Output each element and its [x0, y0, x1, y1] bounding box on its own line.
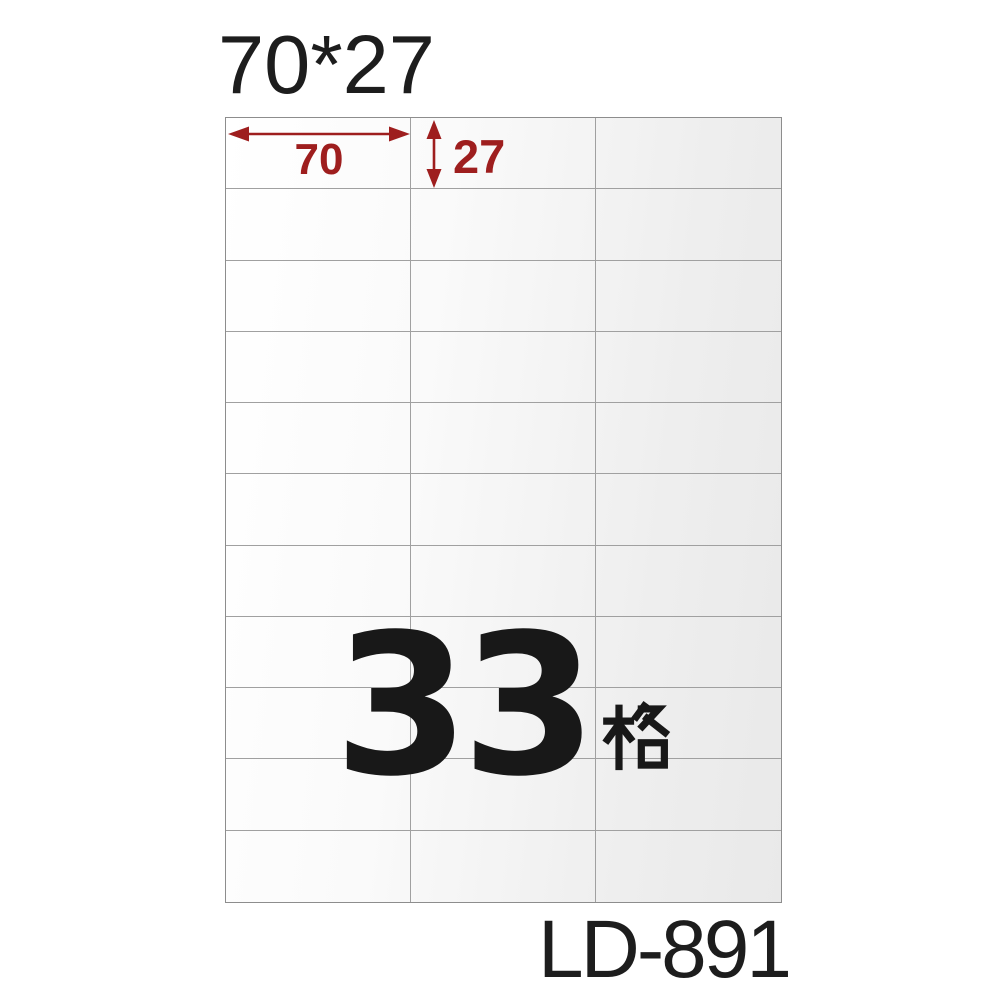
label-cell — [226, 189, 411, 260]
label-cell — [226, 403, 411, 474]
label-cell — [226, 261, 411, 332]
label-cell — [411, 403, 596, 474]
width-dimension-label: 70 — [226, 138, 412, 182]
label-cell — [596, 261, 781, 332]
label-cell — [596, 403, 781, 474]
label-cell — [411, 261, 596, 332]
label-cell — [411, 474, 596, 545]
height-dimension-arrow-icon — [419, 118, 449, 190]
label-cell — [596, 474, 781, 545]
ge-character-glyph-icon — [601, 699, 673, 775]
product-code: LD-891 — [538, 909, 789, 991]
cell-count-number: 33 — [334, 592, 589, 819]
label-cell — [596, 546, 781, 617]
label-cell — [226, 474, 411, 545]
label-cell — [411, 332, 596, 403]
label-cell — [411, 831, 596, 902]
label-sheet-product-diagram: 70*27 70 27 33格 — [0, 0, 1000, 1000]
label-cell — [596, 189, 781, 260]
label-cell — [596, 118, 781, 189]
label-cell — [226, 831, 411, 902]
label-cell — [226, 332, 411, 403]
cell-count-unit-text: 格 — [589, 608, 590, 609]
cell-count-label: 33格 — [226, 608, 781, 803]
height-dimension-label: 27 — [453, 133, 505, 180]
label-cell — [596, 831, 781, 902]
label-cell — [596, 332, 781, 403]
label-size-title: 70*27 — [218, 23, 435, 106]
label-cell — [411, 189, 596, 260]
label-sheet: 70 27 33格 — [225, 117, 782, 903]
